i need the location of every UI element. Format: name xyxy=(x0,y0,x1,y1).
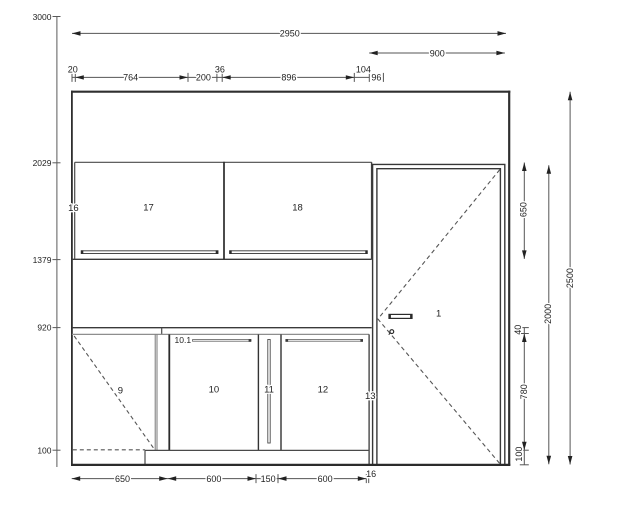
svg-text:12: 12 xyxy=(318,384,329,395)
svg-text:2950: 2950 xyxy=(280,29,300,39)
svg-text:200: 200 xyxy=(196,73,211,83)
svg-text:9: 9 xyxy=(118,385,123,396)
svg-text:3000: 3000 xyxy=(33,12,52,22)
svg-text:1: 1 xyxy=(436,309,441,320)
svg-text:900: 900 xyxy=(430,48,445,58)
svg-text:13: 13 xyxy=(365,391,376,402)
svg-text:780: 780 xyxy=(519,384,529,399)
svg-text:650: 650 xyxy=(115,474,130,484)
svg-text:11: 11 xyxy=(264,384,274,395)
svg-text:896: 896 xyxy=(281,73,296,83)
svg-text:2029: 2029 xyxy=(33,158,52,168)
svg-text:16: 16 xyxy=(68,203,79,214)
svg-text:17: 17 xyxy=(143,202,154,213)
svg-text:2000: 2000 xyxy=(543,304,553,324)
svg-text:1379: 1379 xyxy=(33,255,52,265)
svg-text:600: 600 xyxy=(206,474,221,484)
svg-text:10: 10 xyxy=(209,384,220,395)
svg-text:16: 16 xyxy=(366,469,376,479)
svg-text:10.1: 10.1 xyxy=(175,335,192,345)
svg-text:96: 96 xyxy=(371,73,381,83)
svg-text:650: 650 xyxy=(519,202,529,217)
svg-text:2500: 2500 xyxy=(565,268,575,288)
svg-text:764: 764 xyxy=(123,73,138,83)
svg-text:36: 36 xyxy=(215,65,225,75)
svg-text:100: 100 xyxy=(514,447,524,462)
svg-text:150: 150 xyxy=(261,474,276,484)
svg-text:104: 104 xyxy=(356,65,371,75)
svg-text:20: 20 xyxy=(68,65,78,75)
svg-text:920: 920 xyxy=(37,323,51,333)
svg-text:600: 600 xyxy=(318,474,333,484)
svg-text:40: 40 xyxy=(513,325,523,335)
svg-text:100: 100 xyxy=(37,445,51,455)
svg-text:18: 18 xyxy=(292,202,303,213)
